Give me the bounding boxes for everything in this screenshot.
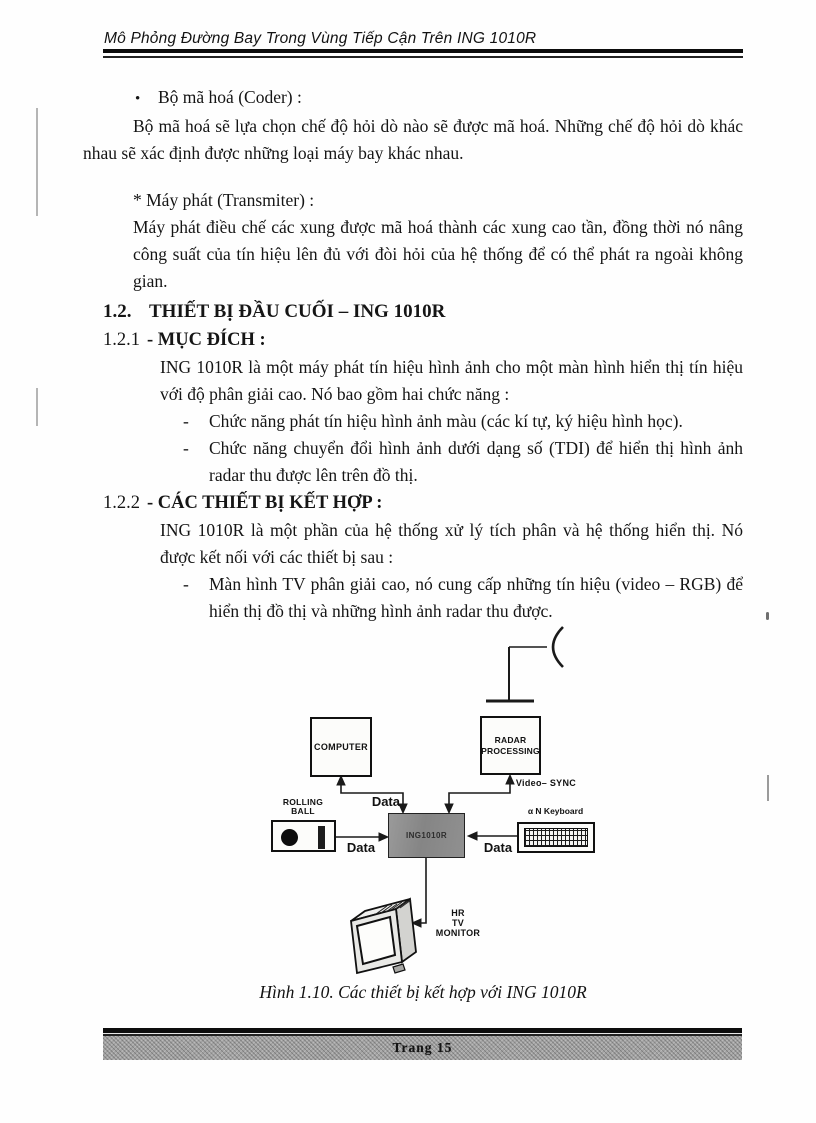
section-number: 1.2.2 bbox=[103, 489, 147, 517]
header-rule bbox=[103, 49, 743, 58]
section-title: - CÁC THIẾT BỊ KẾT HỢP : bbox=[147, 493, 382, 513]
scan-artifact bbox=[36, 108, 38, 216]
computer-box: COMPUTER bbox=[310, 717, 372, 777]
ing-monitor-connector bbox=[412, 858, 426, 927]
coder-paragraph: Bộ mã hoá sẽ lựa chọn chế độ hỏi dò nào … bbox=[83, 113, 743, 167]
scan-artifact bbox=[36, 388, 38, 426]
data-label-rollingball: Data bbox=[340, 840, 382, 855]
list-item: -Chức năng chuyển đổi hình ảnh dưới dạng… bbox=[183, 435, 743, 489]
hr-tv-monitor-label: HRTVMONITOR bbox=[428, 908, 488, 938]
dash-marker: - bbox=[183, 571, 209, 598]
keyboard-label: α N Keyboard bbox=[508, 806, 603, 816]
combined-list: -Màn hình TV phân giải cao, nó cung cấp … bbox=[103, 571, 743, 625]
data-label-computer: Data bbox=[352, 794, 400, 809]
coder-bullet-line: •Bộ mã hoá (Coder) : bbox=[103, 84, 743, 113]
rolling-ball-label: ROLLINGBALL bbox=[268, 798, 338, 816]
antenna-icon bbox=[486, 627, 563, 701]
keyboard-keys-icon bbox=[524, 828, 588, 847]
section-1-2-1-heading: 1.2.1- MỤC ĐÍCH : bbox=[103, 326, 743, 354]
dash-marker: - bbox=[183, 408, 209, 435]
page-header-title: Mô Phỏng Đường Bay Trong Vùng Tiếp Cận T… bbox=[104, 30, 744, 48]
computer-label: COMPUTER bbox=[314, 742, 368, 752]
figure-caption: Hình 1.10. Các thiết bị kết hợp với ING … bbox=[103, 982, 743, 1003]
ing-label: ING1010R bbox=[406, 831, 447, 840]
page-number-label: Trang 15 bbox=[393, 1040, 453, 1056]
combined-paragraph: ING 1010R là một phần của hệ thống xử lý… bbox=[160, 517, 743, 571]
section-1-2-2-heading: 1.2.2- CÁC THIẾT BỊ KẾT HỢP : bbox=[103, 489, 743, 517]
transmitter-paragraph: Máy phát điều chế các xung được mã hoá t… bbox=[133, 214, 743, 295]
diagram-connectors bbox=[0, 618, 816, 984]
list-item-text: Màn hình TV phân giải cao, nó cung cấp n… bbox=[209, 571, 743, 625]
trackball-icon bbox=[281, 829, 298, 846]
document-page: Mô Phỏng Đường Bay Trong Vùng Tiếp Cận T… bbox=[0, 0, 816, 1123]
radar-label: RADARPROCESSING bbox=[481, 735, 540, 757]
radar-processing-box: RADARPROCESSING bbox=[480, 716, 541, 775]
page-footer: Trang 15 bbox=[103, 1028, 742, 1060]
roller-bar-icon bbox=[318, 826, 325, 849]
purpose-paragraph: ING 1010R là một máy phát tín hiệu hình … bbox=[160, 354, 743, 408]
ing-1010r-box: ING1010R bbox=[388, 813, 465, 858]
figure-1-10-diagram: COMPUTER RADARPROCESSING ING1010R ROLLIN… bbox=[0, 618, 816, 984]
video-sync-label: Video– SYNC bbox=[500, 778, 592, 788]
section-title: - MỤC ĐÍCH : bbox=[147, 330, 266, 350]
crt-monitor-icon bbox=[351, 899, 416, 973]
list-item-text: Chức năng phát tín hiệu hình ảnh màu (cá… bbox=[209, 408, 743, 435]
dash-marker: - bbox=[183, 435, 209, 462]
footer-band: Trang 15 bbox=[103, 1036, 742, 1060]
transmitter-item-line: * Máy phát (Transmiter) : bbox=[103, 187, 743, 214]
keyboard-ing-connector bbox=[468, 832, 517, 840]
section-title: THIẾT BỊ ĐẦU CUỐI – ING 1010R bbox=[149, 301, 445, 322]
bullet-icon: • bbox=[135, 86, 158, 113]
rolling-ball-box bbox=[271, 820, 336, 852]
main-text: •Bộ mã hoá (Coder) : Bộ mã hoá sẽ lựa ch… bbox=[103, 84, 743, 625]
list-item: -Chức năng phát tín hiệu hình ảnh màu (c… bbox=[183, 408, 743, 435]
section-1-2-heading: 1.2.THIẾT BỊ ĐẦU CUỐI – ING 1010R bbox=[103, 297, 743, 326]
purpose-list: -Chức năng phát tín hiệu hình ảnh màu (c… bbox=[103, 408, 743, 489]
section-number: 1.2.1 bbox=[103, 326, 147, 354]
data-label-keyboard: Data bbox=[478, 840, 518, 855]
list-item-text: Chức năng chuyển đổi hình ảnh dưới dạng … bbox=[209, 435, 743, 489]
keyboard-box bbox=[517, 822, 595, 853]
section-number: 1.2. bbox=[103, 297, 149, 326]
coder-item-label: Bộ mã hoá (Coder) : bbox=[158, 87, 302, 107]
list-item: -Màn hình TV phân giải cao, nó cung cấp … bbox=[183, 571, 743, 625]
